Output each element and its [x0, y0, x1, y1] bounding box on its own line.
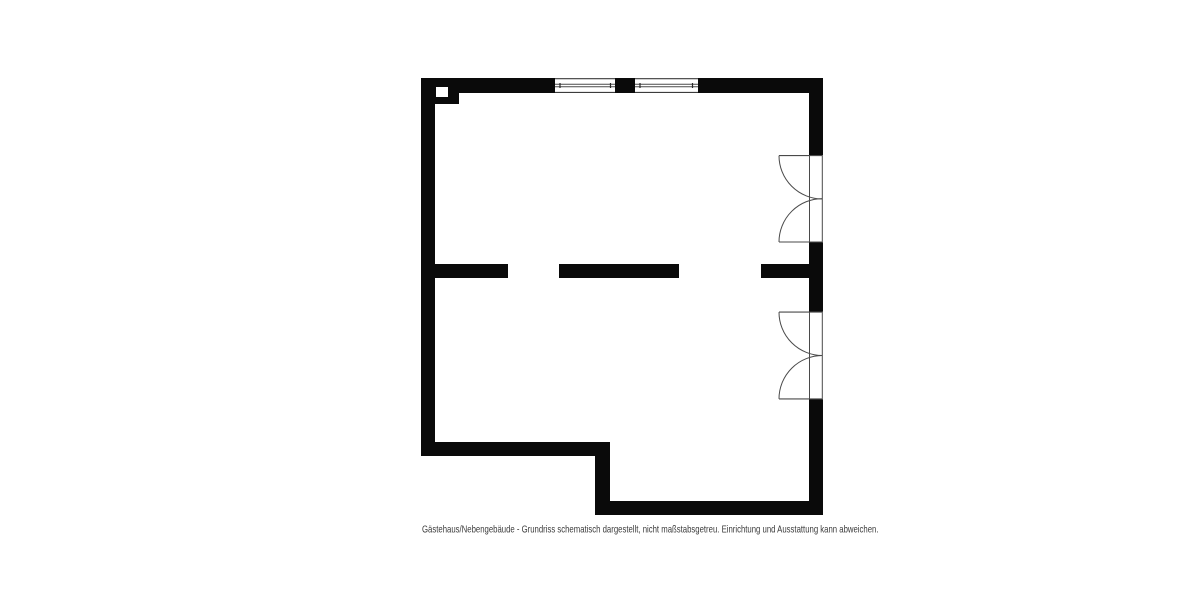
- svg-text:Gästehaus/Nebengebäude - Grund: Gästehaus/Nebengebäude - Grundriss schem…: [422, 525, 879, 536]
